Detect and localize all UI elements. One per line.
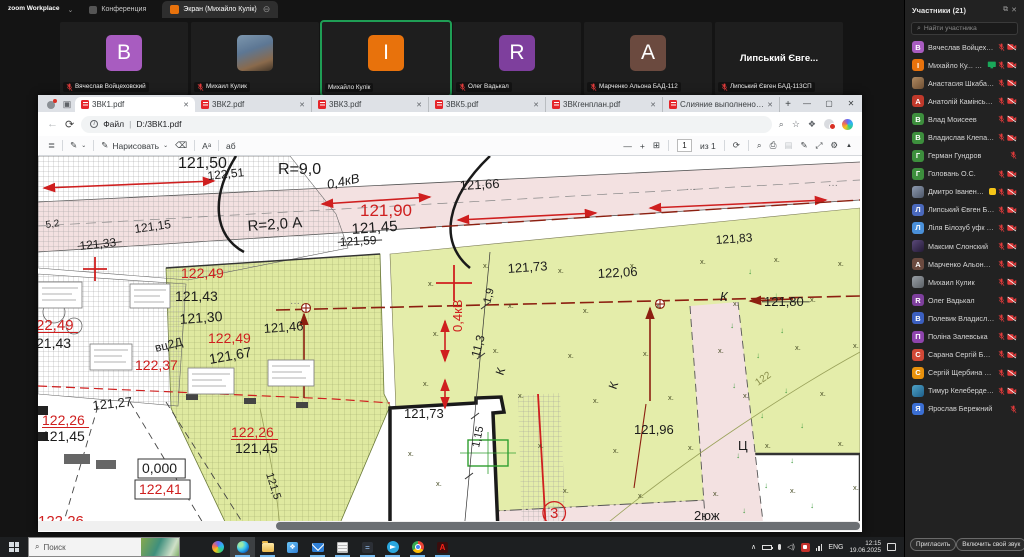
page-info-icon[interactable]: i: [90, 120, 98, 128]
svg-text:121,83: 121,83: [715, 230, 753, 247]
participant-name: Михайло Ку... (Организатор): [928, 61, 983, 70]
svg-text:122,26: 122,26: [231, 424, 274, 440]
svg-text:121,30: 121,30: [179, 308, 223, 327]
svg-text:х.: х.: [538, 441, 544, 450]
reaction-thumb-icon: [989, 188, 996, 195]
taskbar-icon-chrome[interactable]: [405, 537, 430, 557]
svg-text:121,73: 121,73: [507, 258, 548, 276]
tile-name-label: Михаил Кулик: [194, 82, 250, 92]
participant-name: Поліна Залевська: [928, 332, 994, 341]
avatar: [912, 186, 924, 198]
svg-text:↓: ↓: [790, 456, 794, 465]
avatar: Л: [912, 222, 924, 234]
svg-text:х.: х.: [428, 279, 434, 288]
participant-name: Герман Гундров: [928, 151, 1006, 160]
notifications-icon[interactable]: [887, 543, 896, 551]
eraser-icon[interactable]: ⌫: [175, 140, 187, 151]
participant-row[interactable]: ЛЛіля Білозуб уфк 112з_2: [905, 219, 1024, 237]
participant-row[interactable]: Дмитро Іваненко (эксперт ...: [905, 183, 1024, 201]
participant-name: Анастасия Шкабарня БАД-114: [928, 79, 994, 88]
svg-text:х.: х.: [853, 483, 859, 492]
participant-row[interactable]: ВВлад Моисеев: [905, 110, 1024, 128]
svg-text:х.: х.: [765, 441, 771, 450]
svg-text:↓: ↓: [800, 421, 804, 430]
taskbar-icon-edge[interactable]: [230, 537, 255, 557]
participant-name: Головань О.С.: [928, 169, 994, 178]
svg-text:↓: ↓: [760, 411, 764, 420]
tile-name-label: Липський Євген БАД-113СП: [718, 82, 815, 92]
copilot-icon[interactable]: [842, 119, 853, 130]
participant-row[interactable]: ГГерман Гундров: [905, 147, 1024, 165]
system-tray: ∧ ◁) ENG 12:15 19.06.2025: [751, 540, 904, 554]
unmute-button[interactable]: Включить свой звук: [956, 538, 1024, 551]
start-button[interactable]: [0, 537, 28, 557]
svg-text:х.: х.: [838, 259, 844, 268]
browser-tab[interactable]: Слияние выполнено_202...✕: [663, 97, 780, 112]
avatar: В: [912, 41, 924, 53]
participant-name: Марченко Альона БАД-112: [928, 260, 994, 269]
tray-mic-icon[interactable]: [778, 544, 781, 550]
popout-icon[interactable]: ⧉: [1003, 6, 1008, 14]
svg-text:х.: х.: [795, 343, 801, 352]
video-strip: BВячеслав ВойцеховскийМихаил КуликIМихай…: [60, 22, 843, 95]
avatar: [912, 240, 924, 252]
print-icon[interactable]: ⎙: [770, 140, 777, 151]
extensions-icon[interactable]: ❖: [808, 119, 816, 130]
avatar: І: [912, 59, 924, 71]
svg-text:2юж: 2юж: [694, 508, 720, 523]
recording-icon[interactable]: [801, 543, 810, 552]
tab-shared-screen[interactable]: Экран (Михайло Кулік) ⊖: [162, 1, 278, 18]
participant-row[interactable]: ЯЯрослав Бережний: [905, 400, 1024, 418]
svg-text:х.: х.: [593, 396, 599, 405]
zoom-titlebar: zoom Workplace ⌄ Конференция Экран (Миха…: [0, 0, 904, 19]
battery-icon[interactable]: [762, 545, 772, 550]
meeting-icon: [89, 6, 97, 14]
browser-profile-icon[interactable]: [824, 119, 834, 129]
avatar: [912, 77, 924, 89]
participants-list: ВВячеслав Войцеховський (Я)ІМихайло Ку..…: [905, 38, 1024, 531]
save-icon[interactable]: ▤: [784, 140, 792, 151]
participant-row[interactable]: ААнатолій Камінський БАД-113: [905, 92, 1024, 110]
svg-text:х.: х.: [774, 255, 780, 264]
participant-name: Михаил Кулик: [928, 278, 994, 287]
svg-text:↓: ↓: [780, 326, 784, 335]
avatar: B: [106, 35, 142, 71]
svg-text:К: К: [720, 289, 729, 304]
svg-text:122,49: 122,49: [181, 265, 224, 281]
participant-row[interactable]: ГГоловань О.С.: [905, 165, 1024, 183]
participant-name: Анатолій Камінський БАД-113: [928, 97, 994, 106]
draw-button[interactable]: ✎ Нарисовать ⌄: [101, 140, 168, 151]
participant-name: Владислав Клепачко: [928, 133, 994, 142]
fit-page-icon[interactable]: ⊞: [653, 140, 660, 151]
participant-row[interactable]: Тимур Келеберденко БАД 113: [905, 382, 1024, 400]
svg-text:3: 3: [550, 505, 558, 522]
taskbar-icon-calculator[interactable]: =: [355, 537, 380, 557]
svg-text:···: ···: [686, 184, 696, 195]
taskbar-icon-mail[interactable]: [305, 537, 330, 557]
svg-text:х.: х.: [638, 491, 644, 500]
pdf-file-icon: [669, 100, 677, 109]
svg-text:↓: ↓: [784, 386, 788, 395]
svg-text:↓: ↓: [810, 501, 814, 510]
pdf-toolbar: ≣ ✎ ⌄ ✎ Нарисовать ⌄ ⌫ Aᵃ аб — + ⊞ 1 из …: [38, 136, 862, 156]
svg-text:х.: х.: [668, 393, 674, 402]
tile-name-label: Вячеслав Войцеховский: [63, 82, 149, 92]
search-document-icon[interactable]: ⌕: [757, 140, 762, 151]
toc-icon[interactable]: ≣: [48, 140, 55, 151]
close-tab-icon[interactable]: ✕: [767, 101, 773, 109]
svg-text:х.: х.: [700, 257, 706, 266]
pen-tool-icon[interactable]: ✎ ⌄: [70, 140, 86, 151]
svg-text:↓: ↓: [748, 267, 752, 276]
svg-text:122,06: 122,06: [597, 264, 637, 281]
screen-share-icon: [170, 5, 179, 14]
zoom-page-icon[interactable]: ⌕: [779, 119, 784, 130]
video-tile[interactable]: Липський Євге...Липський Євген БАД-113СП: [715, 22, 843, 95]
svg-text:х.: х.: [583, 306, 589, 315]
avatar: П: [912, 331, 924, 343]
browser-tab[interactable]: 3ВК1.pdf✕: [75, 97, 195, 112]
svg-text:↓: ↓: [730, 321, 734, 330]
svg-text:х.: х.: [733, 299, 739, 308]
svg-text:121,45: 121,45: [42, 428, 85, 444]
svg-text:х.: х.: [518, 391, 524, 400]
svg-text:х.: х.: [688, 443, 694, 452]
avatar: A: [630, 35, 666, 71]
participant-search-input[interactable]: ⌕ Найти участника: [911, 22, 1018, 35]
svg-text:0,000: 0,000: [142, 460, 177, 476]
avatar: С: [912, 367, 924, 379]
video-tile[interactable]: IМихайло Кулік: [322, 22, 450, 95]
svg-text:121,96: 121,96: [634, 422, 674, 437]
tile-name-label: Михайло Кулік: [325, 83, 373, 92]
text-highlight-icon[interactable]: Aᵃ: [202, 141, 211, 151]
svg-text:х.: х.: [493, 346, 499, 355]
svg-text:↓: ↓: [732, 381, 736, 390]
svg-text:х.: х.: [563, 486, 569, 495]
zoom-workplace-logo: zoom Workplace: [8, 6, 60, 13]
participant-name: Максим Слонский: [928, 242, 994, 251]
collapse-toolbar-icon[interactable]: ▲: [846, 143, 852, 149]
search-icon: ⌕: [917, 25, 921, 33]
network-icon[interactable]: [816, 544, 823, 551]
avatar: В: [912, 132, 924, 144]
avatar: В: [912, 312, 924, 324]
participant-name: Полевик Владислав: [928, 314, 994, 323]
windows-taskbar: ⌕ Поиск ❖=A ∧ ◁) ENG 12:15 19.06.2025: [0, 537, 904, 557]
participant-name: Сарана Сергій БАД-114: [928, 350, 994, 359]
browser-tabstrip: ▣ 3ВК1.pdf✕3ВК2.pdf✕3ВК3.pdf✕3ВК5.pdf✕3В…: [38, 95, 862, 112]
fullscreen-icon[interactable]: ⤢: [816, 140, 823, 151]
volume-icon[interactable]: ◁): [787, 543, 795, 551]
svg-text:↓: ↓: [764, 481, 768, 490]
search-daily-image: [141, 538, 179, 556]
svg-text:22,49: 22,49: [38, 317, 74, 334]
avatar: [237, 35, 273, 71]
close-tab-icon[interactable]: ✕: [416, 101, 422, 109]
window-minimize-button[interactable]: —: [796, 95, 818, 112]
svg-text:х.: х.: [713, 489, 719, 498]
close-tab-icon[interactable]: ✕: [183, 101, 189, 109]
page-count-label: из 1: [700, 141, 716, 151]
favorites-star-icon[interactable]: ☆: [792, 119, 800, 130]
back-icon[interactable]: ←: [47, 118, 58, 130]
zoom-in-icon[interactable]: +: [640, 141, 645, 151]
invite-button[interactable]: Пригласить: [910, 538, 956, 551]
tile-name-label: Олег Вадькал: [456, 82, 512, 92]
avatar: А: [912, 258, 924, 270]
video-tile[interactable]: Михаил Кулик: [191, 22, 319, 95]
rotate-icon[interactable]: ⟳: [733, 140, 740, 151]
read-aloud-icon[interactable]: аб: [226, 141, 236, 151]
pdf-canvas[interactable]: х.х.х.х.х.х.х.х.х.х.х.х.х.х.х.х.х.х.х.х.…: [38, 156, 862, 531]
participant-name: Ярослав Бережний: [928, 404, 1006, 413]
edge-browser-window: ▣ 3ВК1.pdf✕3ВК2.pdf✕3ВК3.pdf✕3ВК5.pdf✕3В…: [38, 95, 862, 532]
participant-row[interactable]: ССарана Сергій БАД-114: [905, 346, 1024, 364]
participant-row[interactable]: ЛЛипський Євген БАД-113СП: [905, 201, 1024, 219]
svg-text:21,43: 21,43: [38, 335, 71, 351]
window-maximize-button[interactable]: ▢: [818, 95, 840, 112]
svg-text:х.: х.: [436, 479, 442, 488]
svg-text:х.: х.: [718, 346, 724, 355]
page-number-input[interactable]: 1: [677, 139, 692, 152]
participant-name: Дмитро Іваненко (эксперт ...: [928, 187, 985, 196]
avatar: I: [368, 35, 404, 71]
avatar: Г: [912, 150, 924, 162]
participant-row[interactable]: ІМихайло Ку... (Организатор): [905, 56, 1024, 74]
video-tile[interactable]: RОлег Вадькал: [453, 22, 581, 95]
svg-text:х.: х.: [408, 449, 414, 458]
pdf-file-icon: [81, 100, 89, 109]
svg-text:х.: х.: [643, 349, 649, 358]
avatar: А: [912, 95, 924, 107]
avatar: В: [912, 113, 924, 125]
svg-text:0,4кВ: 0,4кВ: [450, 300, 465, 332]
url-text: D:/3ВК1.pdf: [136, 119, 181, 129]
svg-text:R=9,0: R=9,0: [278, 161, 321, 178]
taskbar-icon-photos[interactable]: ❖: [280, 537, 305, 557]
avatar: R: [912, 294, 924, 306]
svg-text:х.: х.: [558, 266, 564, 275]
taskbar-icon-copilot[interactable]: [205, 537, 230, 557]
participants-title: Участники (21): [912, 6, 966, 15]
pdf-file-icon: [318, 100, 326, 109]
search-icon: ⌕: [35, 542, 39, 552]
clock[interactable]: 12:15 19.06.2025: [849, 540, 881, 554]
avatar: Г: [912, 168, 924, 180]
participant-row[interactable]: Анастасия Шкабарня БАД-114: [905, 74, 1024, 92]
browser-tab[interactable]: 3ВКгенплан.pdf✕: [546, 97, 663, 112]
taskbar-search-input[interactable]: ⌕ Поиск: [28, 537, 180, 557]
svg-text:122,41: 122,41: [139, 481, 182, 497]
participant-name: Олег Вадькал: [928, 296, 994, 305]
svg-text:х.: х.: [433, 329, 439, 338]
svg-text:121,90: 121,90: [360, 201, 412, 220]
avatar: С: [912, 349, 924, 361]
svg-text:х.: х.: [423, 379, 429, 388]
video-tile[interactable]: BВячеслав Войцеховский: [60, 22, 188, 95]
participant-row[interactable]: ВПолевик Владислав: [905, 309, 1024, 327]
svg-text:х.: х.: [508, 301, 514, 310]
svg-text:122,49: 122,49: [208, 330, 251, 346]
svg-text:х.: х.: [483, 261, 489, 270]
svg-text:Ц: Ц: [738, 438, 748, 453]
tab-search-icon[interactable]: ▣: [59, 97, 75, 112]
participant-row[interactable]: ССергій Щербина БАД 122: [905, 364, 1024, 382]
svg-text:121,46: 121,46: [263, 318, 304, 336]
taskbar-icon-onenote[interactable]: [330, 537, 355, 557]
taskbar-icon-acrobat[interactable]: A: [430, 537, 455, 557]
svg-text:121,45: 121,45: [235, 440, 278, 456]
participant-name: Тимур Келеберденко БАД 113: [928, 386, 994, 395]
svg-text:↓: ↓: [742, 506, 746, 515]
tray-expand-icon[interactable]: ∧: [751, 543, 756, 551]
svg-text:122,37: 122,37: [135, 357, 178, 373]
svg-text:121,73: 121,73: [404, 406, 444, 421]
avatar: R: [499, 35, 535, 71]
svg-text:х.: х.: [743, 391, 749, 400]
close-tab-icon[interactable]: ✕: [299, 101, 305, 109]
browser-tab[interactable]: 3ВК2.pdf✕: [195, 97, 312, 112]
svg-text:121,66: 121,66: [459, 176, 499, 193]
save-as-icon[interactable]: ✎: [800, 140, 807, 151]
participant-row[interactable]: ВВячеслав Войцеховський (Я): [905, 38, 1024, 56]
participant-row[interactable]: RОлег Вадькал: [905, 291, 1024, 309]
tab-meeting[interactable]: Конференция: [81, 1, 154, 18]
zoom-out-icon[interactable]: —: [623, 141, 632, 151]
svg-text:х.: х.: [790, 486, 796, 495]
avatar: [912, 276, 924, 288]
tile-name-label: Марченко Альона БАД-112: [587, 82, 681, 92]
svg-text:х.: х.: [820, 389, 826, 398]
participant-name: Вячеслав Войцеховський (Я): [928, 43, 994, 52]
participant-row[interactable]: ППоліна Залевська: [905, 328, 1024, 346]
profile-icon[interactable]: [43, 97, 59, 112]
svg-text:х.: х.: [838, 439, 844, 448]
horizontal-scrollbar-thumb: [276, 522, 860, 530]
pdf-drawing: х.х.х.х.х.х.х.х.х.х.х.х.х.х.х.х.х.х.х.х.…: [38, 156, 860, 531]
taskbar-icon-task-view[interactable]: [180, 537, 205, 557]
svg-text:122,26: 122,26: [42, 412, 85, 428]
avatar: [912, 385, 924, 397]
language-indicator[interactable]: ENG: [828, 544, 843, 551]
pdf-file-icon: [435, 100, 443, 109]
refresh-icon[interactable]: ⟳: [65, 118, 74, 131]
address-bar: ← ⟳ i Файл | D:/3ВК1.pdf ⌕ ☆ ❖: [38, 112, 862, 136]
participant-row[interactable]: Максим Слонский: [905, 237, 1024, 255]
participant-row[interactable]: Михаил Кулик: [905, 273, 1024, 291]
participant-name: Ліля Білозуб уфк 112з_2: [928, 223, 994, 232]
svg-text:↓: ↓: [756, 351, 760, 360]
svg-text:х.: х.: [613, 446, 619, 455]
browser-tab[interactable]: 3ВК5.pdf✕: [429, 97, 546, 112]
avatar: Я: [912, 403, 924, 415]
participant-row[interactable]: ВВладислав Клепачко: [905, 128, 1024, 146]
new-tab-button[interactable]: +: [780, 97, 796, 112]
taskbar-icon-telegram[interactable]: [380, 537, 405, 557]
pdf-file-icon: [201, 100, 209, 109]
svg-text:···: ···: [290, 298, 300, 309]
window-close-button[interactable]: ✕: [840, 95, 862, 112]
svg-text:х.: х.: [568, 351, 574, 360]
svg-text:5,2: 5,2: [45, 218, 61, 231]
close-tab-icon[interactable]: ✕: [533, 101, 539, 109]
avatar: Л: [912, 204, 924, 216]
svg-text:х.: х.: [656, 301, 662, 310]
svg-text:х.: х.: [853, 341, 859, 350]
taskbar-icon-file-explorer[interactable]: [255, 537, 280, 557]
close-panel-icon[interactable]: ✕: [1011, 6, 1017, 14]
participant-name: Липський Євген БАД-113СП: [928, 205, 994, 214]
pdf-file-icon: [552, 100, 560, 109]
participant-name: Сергій Щербина БАД 122: [928, 368, 994, 377]
settings-gear-icon[interactable]: ⚙: [830, 140, 838, 151]
url-field[interactable]: i Файл | D:/3ВК1.pdf: [81, 116, 772, 133]
chevron-down-icon[interactable]: ⌄: [68, 6, 74, 14]
svg-text:121,43: 121,43: [175, 288, 218, 304]
close-tab-icon[interactable]: ✕: [650, 101, 656, 109]
browser-tab[interactable]: 3ВК3.pdf✕: [312, 97, 429, 112]
video-tile[interactable]: AМарченко Альона БАД-112: [584, 22, 712, 95]
svg-text:···: ···: [828, 180, 838, 191]
participants-panel: Участники (21) ⧉ ✕ ⌕ Найти участника ВВя…: [904, 0, 1024, 557]
participant-row[interactable]: АМарченко Альона БАД-112: [905, 255, 1024, 273]
collapse-tab-icon[interactable]: ⊖: [263, 4, 271, 15]
participant-name: Влад Моисеев: [928, 115, 994, 124]
svg-text:х.: х.: [810, 295, 816, 304]
